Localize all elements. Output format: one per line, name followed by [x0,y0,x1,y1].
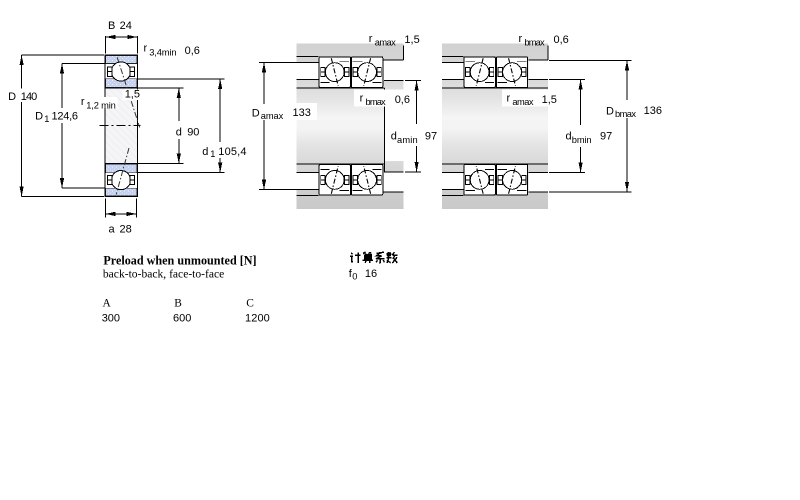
svg-text:0,6: 0,6 [395,94,410,106]
svg-text:B: B [108,20,115,32]
svg-text:Preload when unmounted [N]: Preload when unmounted [N] [103,253,256,267]
svg-text:r: r [519,33,523,45]
svg-text:r: r [507,92,511,104]
svg-text:1: 1 [210,149,215,159]
svg-text:0: 0 [352,272,357,282]
svg-text:D: D [35,110,43,122]
svg-text:bmax: bmax [524,37,545,47]
svg-text:3,4min: 3,4min [149,47,176,57]
svg-text:r: r [369,33,373,45]
svg-text:amax: amax [375,37,396,47]
svg-text:1,2 min: 1,2 min [86,101,116,111]
svg-text:140: 140 [21,91,38,103]
svg-text:r: r [81,96,85,108]
svg-text:d: d [202,146,208,158]
svg-text:amax: amax [261,111,284,121]
svg-text:24: 24 [120,20,132,32]
svg-text:r: r [360,92,364,104]
svg-text:133: 133 [293,107,311,119]
svg-text:amax: amax [512,97,533,107]
svg-text:d: d [391,130,397,142]
svg-text:1200: 1200 [245,312,270,324]
svg-text:back-to-back, face-to-face: back-to-back, face-to-face [103,266,224,280]
svg-text:r: r [144,43,148,55]
svg-text:D: D [252,107,260,119]
svg-text:0,6: 0,6 [554,34,569,46]
svg-text:A: A [103,298,112,310]
svg-text:D: D [8,91,16,103]
svg-text:0,6: 0,6 [185,45,200,57]
svg-text:bmin: bmin [572,135,592,145]
svg-text:bmax: bmax [366,97,387,107]
svg-text:600: 600 [173,312,191,324]
svg-text:1,5: 1,5 [404,34,419,46]
svg-text:1,5: 1,5 [542,94,557,106]
svg-text:amin: amin [397,135,418,145]
svg-text:97: 97 [425,130,437,142]
svg-text:16: 16 [365,268,377,280]
svg-text:105,4: 105,4 [218,146,246,158]
svg-text:bmax: bmax [615,109,636,119]
svg-text:97: 97 [600,130,612,142]
svg-text:90: 90 [187,126,199,138]
svg-text:B: B [174,298,182,310]
svg-text:300: 300 [102,312,120,324]
svg-text:1,5: 1,5 [125,89,140,101]
svg-text:1: 1 [44,114,49,124]
svg-text:d: d [176,126,182,138]
svg-text:d: d [566,130,572,142]
svg-text:28: 28 [120,224,132,236]
svg-text:a: a [109,224,116,236]
svg-text:124,6: 124,6 [52,110,79,122]
svg-text:C: C [246,298,254,310]
svg-text:D: D [606,105,614,117]
svg-text:136: 136 [644,105,662,117]
